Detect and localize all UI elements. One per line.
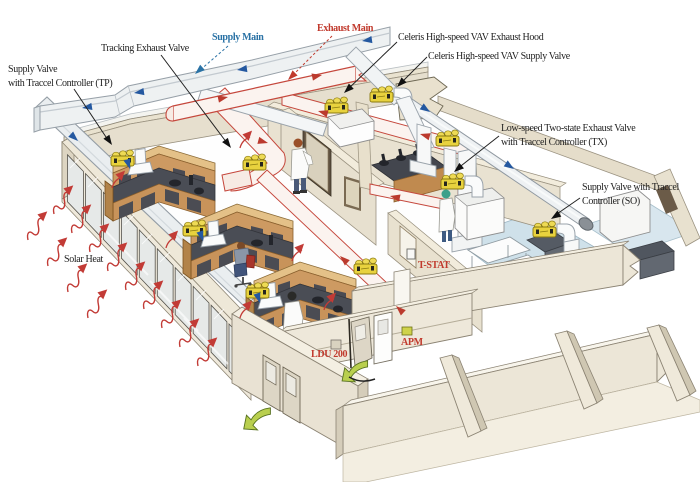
svg-text:Celeris High-speed VAV Supply: Celeris High-speed VAV Supply Valve — [428, 51, 571, 62]
svg-text:Exhaust Main: Exhaust Main — [317, 23, 374, 34]
svg-text:Solar Heat: Solar Heat — [64, 254, 104, 265]
svg-text:LDU 200: LDU 200 — [311, 349, 348, 360]
svg-text:Tracking Exhaust Valve: Tracking Exhaust Valve — [101, 43, 190, 54]
svg-text:Low-speed Two-state Exhaust Va: Low-speed Two-state Exhaust Valve — [501, 123, 636, 134]
svg-text:with Traccel Controller (TX): with Traccel Controller (TX) — [501, 137, 607, 148]
svg-text:Supply Valve with Traccel: Supply Valve with Traccel — [582, 182, 679, 193]
svg-text:APM: APM — [401, 337, 424, 348]
svg-text:with Traccel Controller (TP): with Traccel Controller (TP) — [8, 78, 112, 89]
svg-text:Supply Main: Supply Main — [212, 32, 264, 43]
svg-text:Celeris High-speed VAV Exhaust: Celeris High-speed VAV Exhaust Hood — [398, 32, 544, 43]
svg-text:Controller (SO): Controller (SO) — [582, 196, 640, 207]
svg-text:Supply Valve: Supply Valve — [8, 64, 58, 75]
svg-text:T-STAT: T-STAT — [418, 260, 450, 271]
